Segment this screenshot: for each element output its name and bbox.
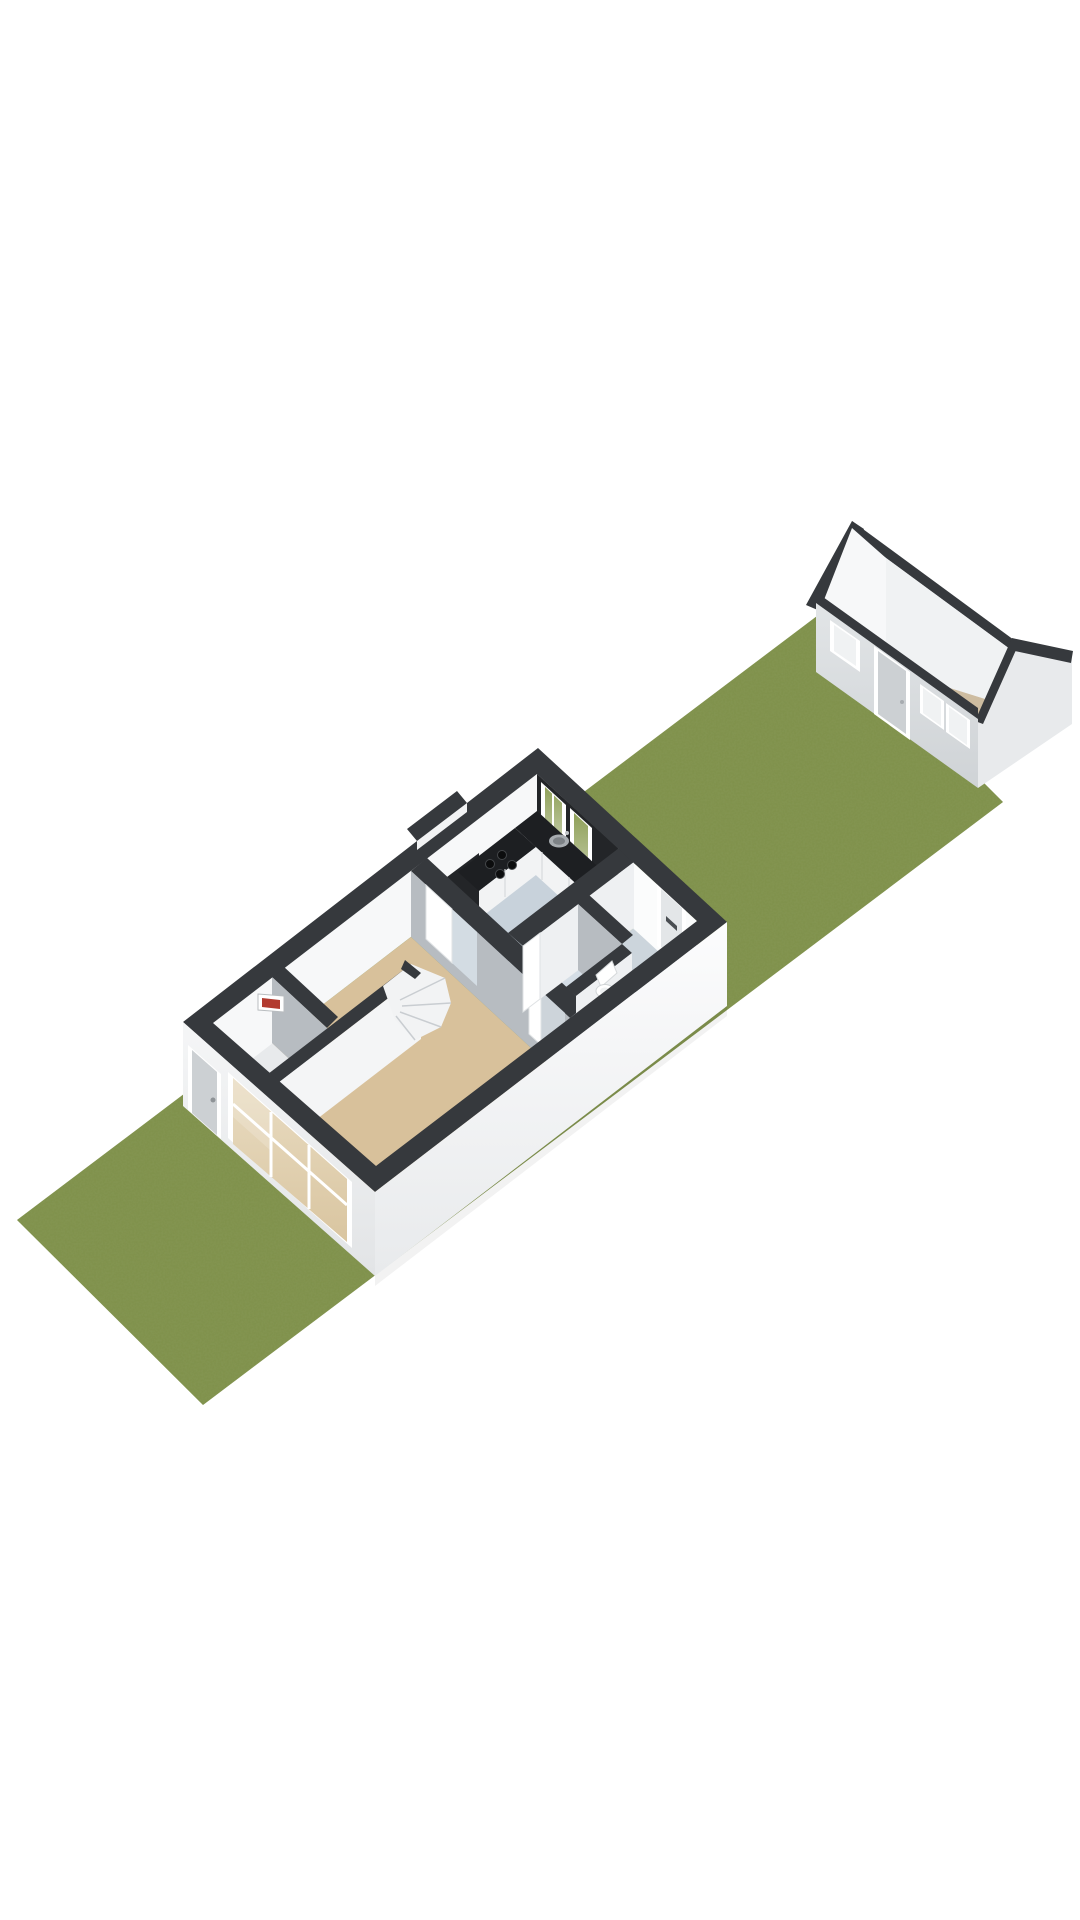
- toilet-door-leaf: [523, 933, 540, 1012]
- fuse-box: [258, 994, 284, 1012]
- floorplan-screenshot: 3D floor plan - ground floor cutaway wit…: [0, 0, 1080, 1920]
- floorplan-scene: [0, 0, 1080, 1920]
